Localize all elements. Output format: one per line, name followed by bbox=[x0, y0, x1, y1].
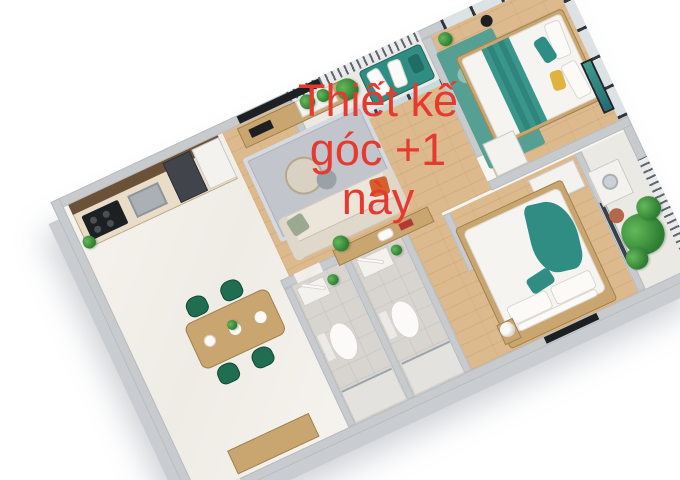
apartment-3d-floorplan bbox=[50, 0, 680, 480]
caption-line-1: Thiết kế bbox=[298, 76, 458, 125]
caption-line-2: góc +1 bbox=[298, 125, 458, 174]
floorplan-image: Thiết kế góc +1 này bbox=[0, 0, 680, 480]
red-caption-overlay: Thiết kế góc +1 này bbox=[298, 76, 458, 223]
caption-line-3: này bbox=[298, 174, 458, 223]
